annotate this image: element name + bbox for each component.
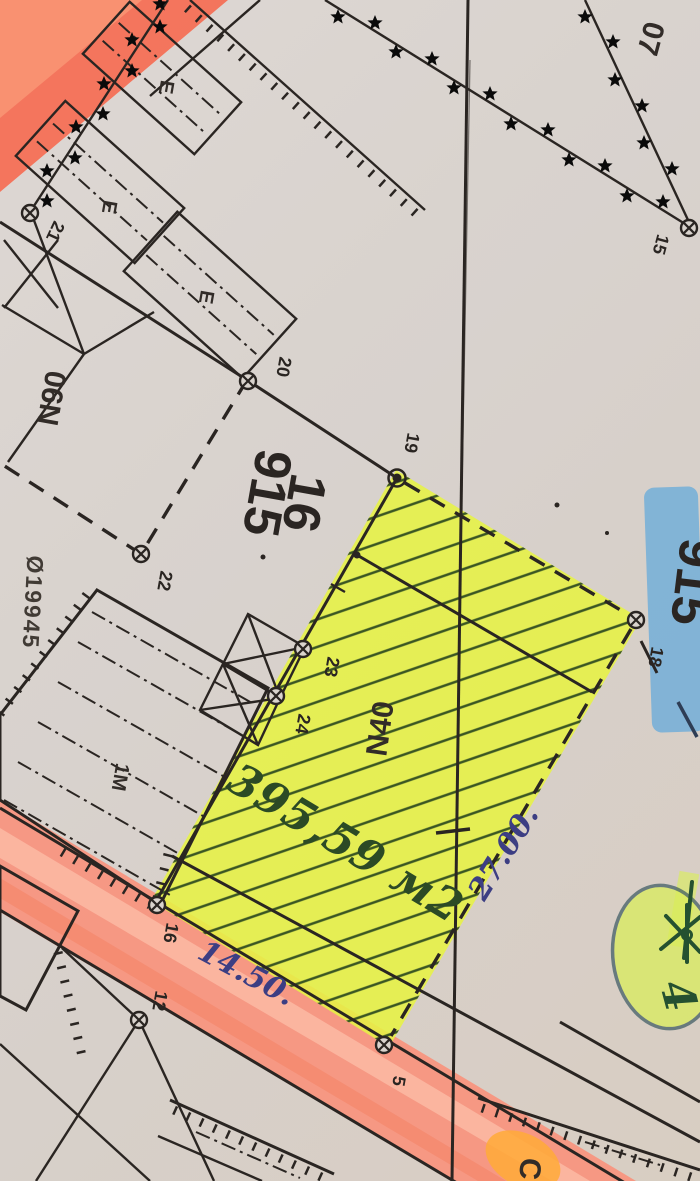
cadastral-map-photo: 915 07 15 21 20 19 22 23 24 18 16 12 5 9… [0,0,700,1181]
photo-sheen [0,0,700,1181]
